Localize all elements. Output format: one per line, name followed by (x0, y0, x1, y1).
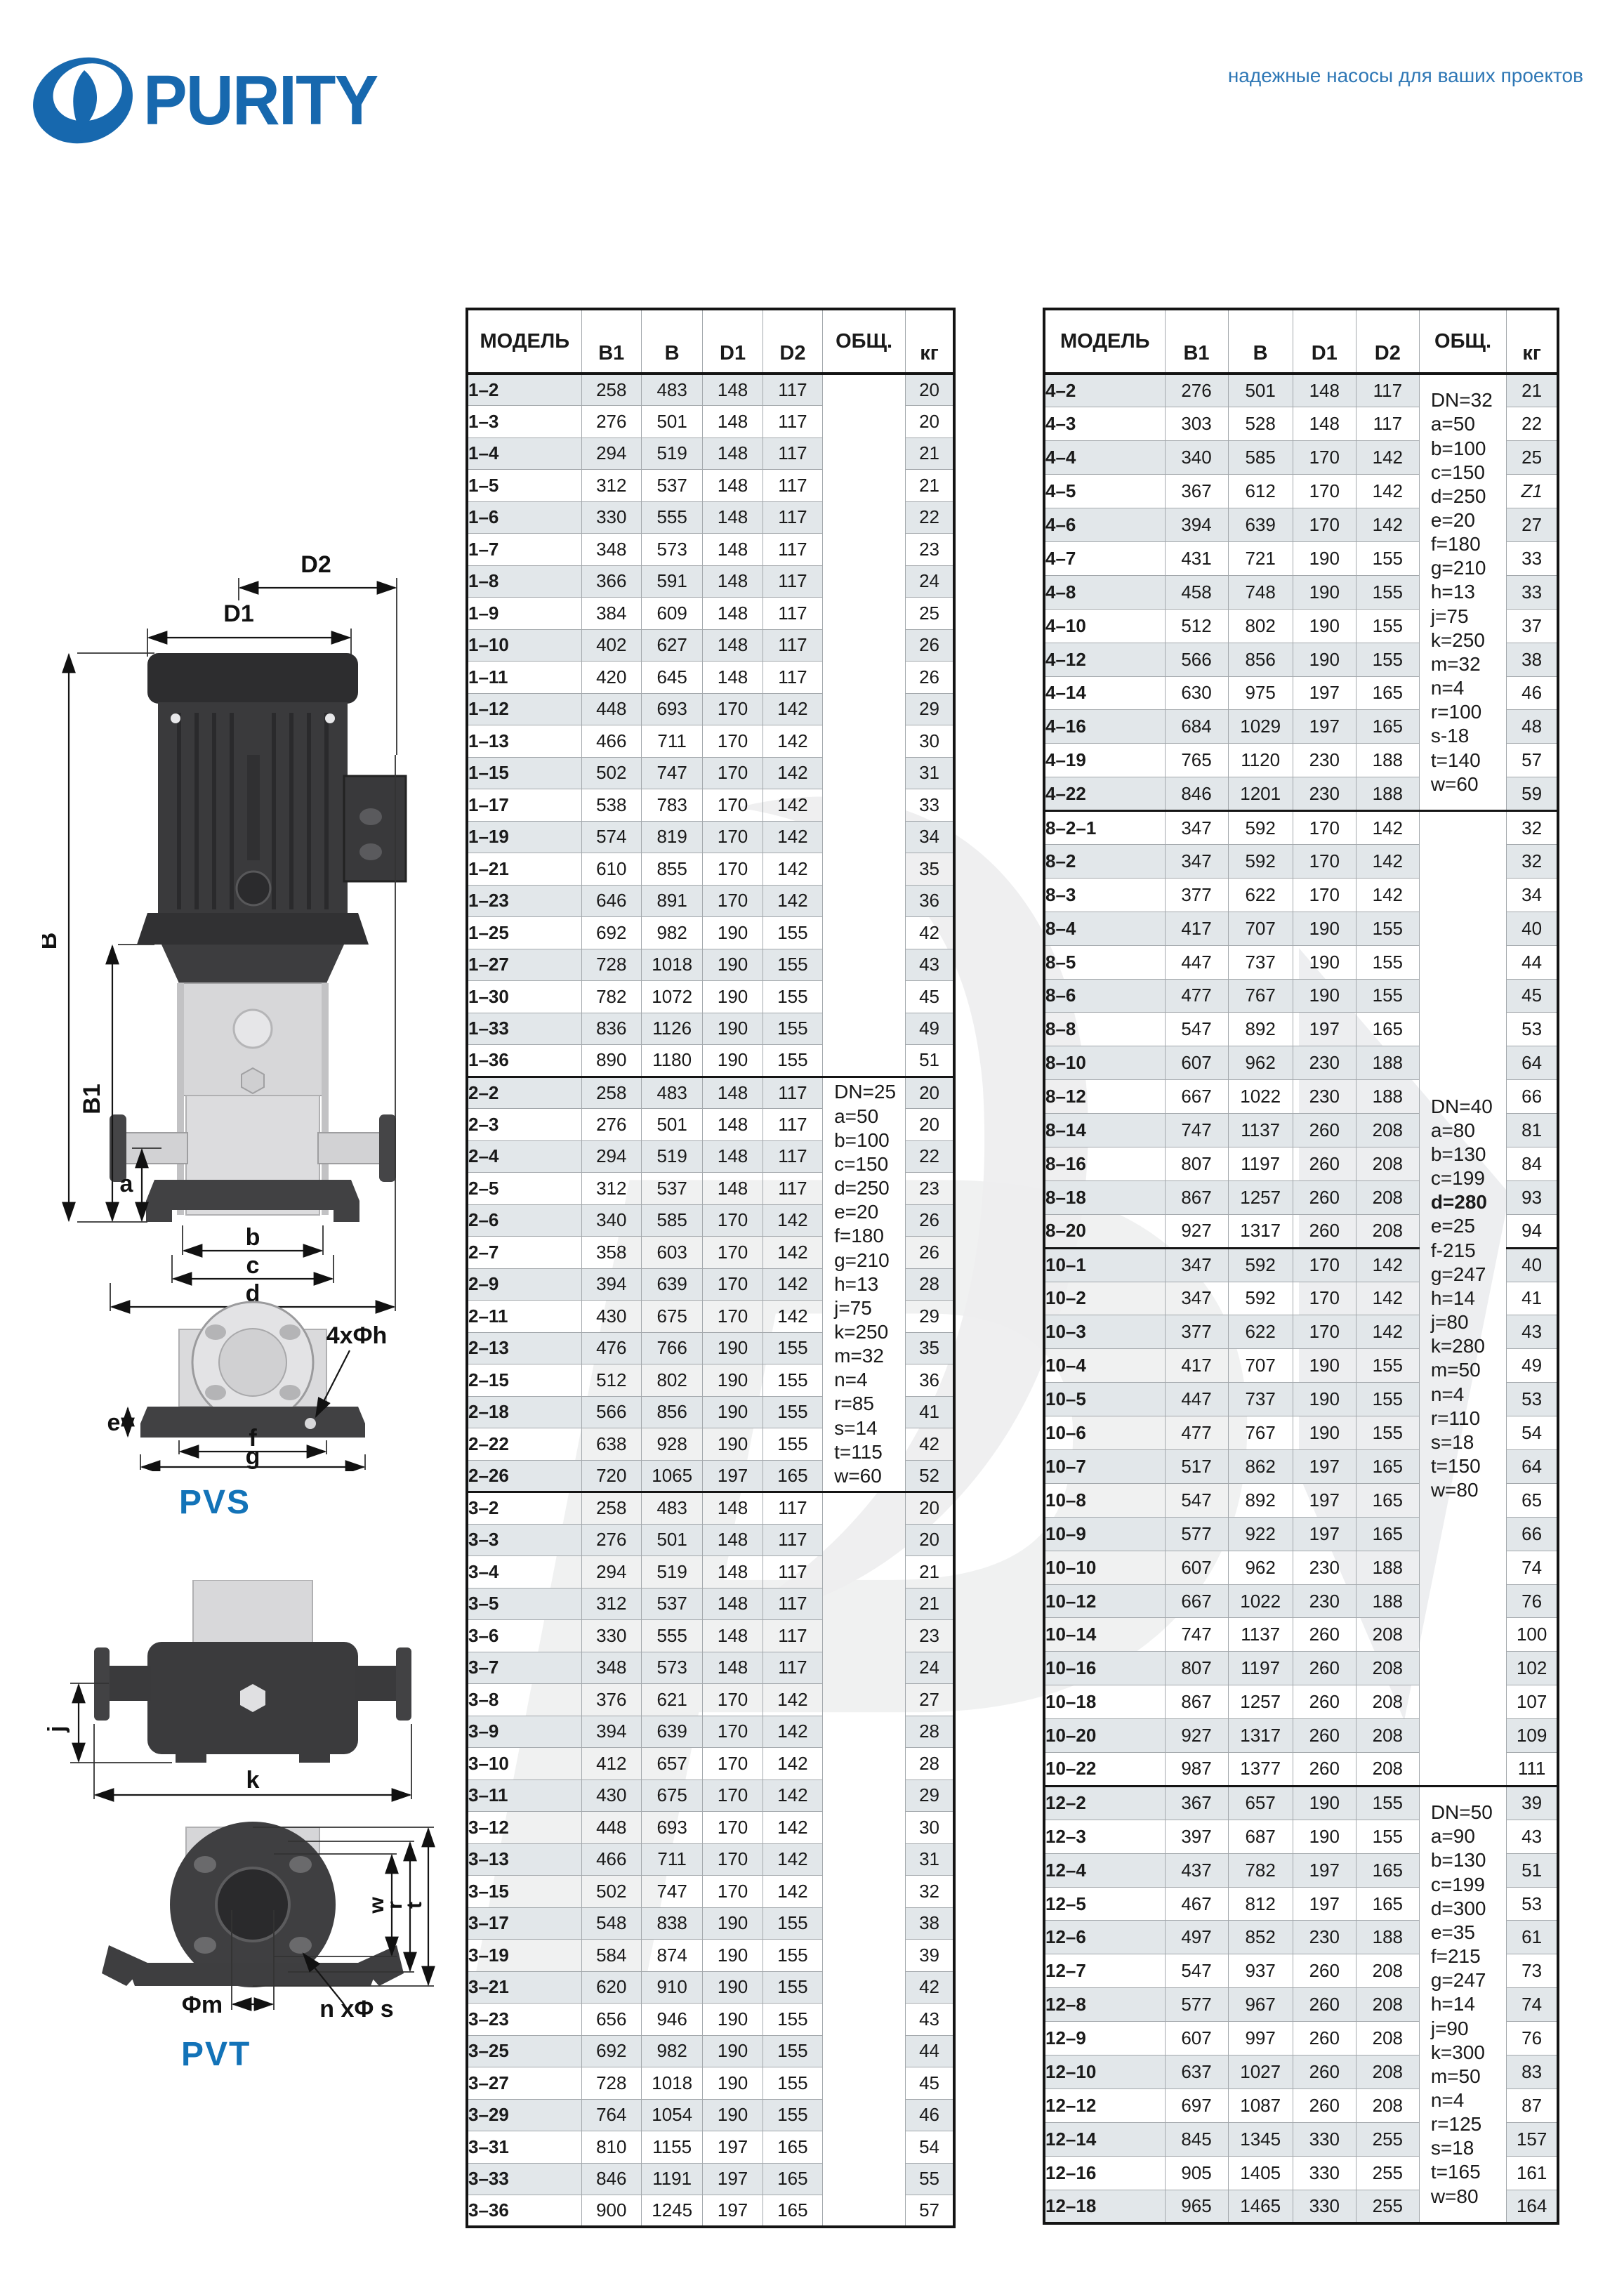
value-cell: 190 (703, 1940, 763, 1972)
value-cell: 142 (763, 725, 822, 758)
value-cell: 107 (1507, 1685, 1558, 1719)
value-cell: 638 (581, 1428, 641, 1461)
value-cell: 639 (1228, 508, 1293, 542)
model-cell: 10–20 (1044, 1719, 1165, 1753)
model-cell: 2–15 (467, 1364, 581, 1397)
value-cell: 155 (763, 1907, 822, 1940)
value-cell: 447 (1165, 1383, 1228, 1416)
value-cell: 142 (1356, 1248, 1419, 1282)
value-cell: 1087 (1228, 2088, 1293, 2122)
value-cell: 190 (1293, 609, 1356, 643)
value-cell: 57 (906, 2195, 954, 2228)
dim-label-a: a (120, 1171, 134, 1197)
value-cell: 30 (906, 725, 954, 758)
value-cell: 32 (906, 1876, 954, 1908)
value-cell: 802 (1228, 609, 1293, 643)
value-cell: 30 (906, 1812, 954, 1844)
model-cell: 1–3 (467, 406, 581, 438)
column-header-4: D2 (763, 309, 822, 374)
value-cell: 845 (1165, 2122, 1228, 2156)
value-cell: 44 (906, 2035, 954, 2067)
value-cell: 20 (906, 406, 954, 438)
model-cell: 2–3 (467, 1109, 581, 1141)
value-cell: 208 (1356, 1652, 1419, 1685)
value-cell: 117 (763, 501, 822, 534)
value-cell: 476 (581, 1332, 641, 1364)
value-cell: 155 (763, 1332, 822, 1364)
value-cell: 190 (1293, 1820, 1356, 1853)
value-cell: 402 (581, 629, 641, 662)
value-cell: 51 (1507, 1853, 1558, 1887)
value-cell: 170 (703, 693, 763, 725)
value-cell: 44 (1507, 945, 1558, 979)
value-cell: 190 (703, 2067, 763, 2100)
value-cell: 900 (581, 2195, 641, 2228)
model-cell: 1–2 (467, 374, 581, 406)
value-cell: 33 (1507, 575, 1558, 609)
dim-label-e: e (107, 1409, 121, 1436)
value-cell: 447 (1165, 945, 1228, 979)
value-cell: 501 (641, 1524, 702, 1556)
value-cell: 260 (1293, 1180, 1356, 1214)
value-cell: 117 (763, 565, 822, 598)
value-cell: 258 (581, 1492, 641, 1525)
value-cell: 87 (1507, 2088, 1558, 2122)
value-cell: 61 (1507, 1921, 1558, 1954)
value-cell: 548 (581, 1907, 641, 1940)
model-cell: 2–2 (467, 1077, 581, 1109)
value-cell: 260 (1293, 1652, 1356, 1685)
value-cell: 27 (906, 1684, 954, 1716)
value-cell: 394 (1165, 508, 1228, 542)
value-cell: 737 (1228, 945, 1293, 979)
value-cell: 21 (1507, 374, 1558, 407)
value-cell: 1345 (1228, 2122, 1293, 2156)
value-cell: 197 (1293, 1517, 1356, 1551)
value-cell: 170 (703, 821, 763, 853)
value-cell: 36 (906, 1364, 954, 1397)
value-cell: 707 (1228, 1349, 1293, 1383)
dim-label-j: j (44, 1725, 70, 1732)
value-cell: 190 (703, 2035, 763, 2067)
value-cell: 466 (581, 1843, 641, 1876)
model-cell: 12–3 (1044, 1820, 1165, 1853)
value-cell: 260 (1293, 1719, 1356, 1753)
value-cell: 142 (763, 885, 822, 917)
value-cell: 40 (1507, 912, 1558, 945)
value-cell: 376 (581, 1684, 641, 1716)
column-header-0: МОДЕЛЬ (467, 309, 581, 374)
value-cell: 555 (641, 1620, 702, 1652)
value-cell: 31 (906, 757, 954, 789)
common-dims-notes-cell: DN=25a=50b=100c=150d=250e=20f=180g=210h=… (823, 1077, 906, 1492)
value-cell: 165 (763, 2195, 822, 2228)
model-cell: 3–2 (467, 1492, 581, 1525)
table-row: 3–225848314811720 (467, 1492, 954, 1525)
value-cell: 276 (581, 1524, 641, 1556)
column-header-0: МОДЕЛЬ (1044, 309, 1165, 374)
value-cell: 692 (581, 917, 641, 949)
column-header-1: B1 (1165, 309, 1228, 374)
value-cell: 258 (581, 374, 641, 406)
value-cell: 348 (581, 1652, 641, 1684)
value-cell: 697 (1165, 2088, 1228, 2122)
value-cell: 928 (641, 1428, 702, 1461)
dim-label-b-height: B (42, 933, 62, 950)
value-cell: 155 (1356, 912, 1419, 945)
value-cell: 260 (1293, 2088, 1356, 2122)
value-cell: 519 (641, 1556, 702, 1588)
model-cell: 10–6 (1044, 1416, 1165, 1450)
value-cell: 1126 (641, 1013, 702, 1045)
value-cell: 34 (1507, 878, 1558, 912)
value-cell: 190 (703, 1364, 763, 1397)
model-cell: 12–9 (1044, 2022, 1165, 2055)
value-cell: 197 (1293, 676, 1356, 710)
value-cell: 155 (763, 2004, 822, 2036)
model-cell: 12–7 (1044, 1954, 1165, 1988)
value-cell: 208 (1356, 1753, 1419, 1787)
value-cell: 20 (906, 1077, 954, 1109)
value-cell: 190 (1293, 575, 1356, 609)
model-cell: 10–3 (1044, 1315, 1165, 1349)
value-cell: 148 (703, 1140, 763, 1173)
value-cell: 165 (1356, 1450, 1419, 1484)
value-cell: 170 (703, 1748, 763, 1780)
value-cell: 170 (703, 757, 763, 789)
value-cell: 66 (1507, 1517, 1558, 1551)
value-cell: 28 (906, 1748, 954, 1780)
value-cell: 170 (703, 1301, 763, 1333)
value-cell: 26 (906, 629, 954, 662)
value-cell: 188 (1356, 1921, 1419, 1954)
model-cell: 8–2 (1044, 844, 1165, 878)
value-cell: 20 (906, 1109, 954, 1141)
value-cell: 430 (581, 1780, 641, 1812)
value-cell: 693 (641, 693, 702, 725)
value-cell: 190 (703, 1396, 763, 1428)
value-cell: 1029 (1228, 710, 1293, 744)
value-cell: 294 (581, 1556, 641, 1588)
model-cell: 4–16 (1044, 710, 1165, 744)
model-cell: 10–8 (1044, 1483, 1165, 1517)
value-cell: 603 (641, 1237, 702, 1269)
value-cell: 165 (763, 2131, 822, 2164)
common-dims-notes-cell: DN=50a=90b=130c=199d=300e=35f=215g=247h=… (1419, 1786, 1506, 2223)
value-cell: 142 (1356, 1315, 1419, 1349)
value-cell: 483 (641, 1077, 702, 1109)
table-row: 2–2258483148117DN=25a=50b=100c=150d=250e… (467, 1077, 954, 1109)
model-cell: 2–7 (467, 1237, 581, 1269)
value-cell: 366 (581, 565, 641, 598)
model-cell: 8–5 (1044, 945, 1165, 979)
value-cell: 512 (1165, 609, 1228, 643)
model-cell: 12–8 (1044, 1988, 1165, 2022)
value-cell: 190 (703, 2004, 763, 2036)
value-cell: 260 (1293, 1988, 1356, 2022)
model-cell: 3–4 (467, 1556, 581, 1588)
table-row: 8–2–1347592170142DN=40a=80b=130c=199d=28… (1044, 811, 1558, 845)
value-cell: 170 (1293, 1282, 1356, 1315)
value-cell: 294 (581, 438, 641, 470)
value-cell: 592 (1228, 811, 1293, 845)
value-cell: 22 (906, 1140, 954, 1173)
value-cell: 190 (703, 949, 763, 981)
value-cell: 117 (763, 374, 822, 406)
common-dims-notes-cell: DN=32a=50b=100c=150d=250e=20f=180g=210h=… (1419, 374, 1506, 811)
value-cell: 609 (641, 598, 702, 630)
terminal-box (344, 776, 406, 881)
model-cell: 1–33 (467, 1013, 581, 1045)
value-cell: 230 (1293, 1046, 1356, 1080)
value-cell: 867 (1165, 1180, 1228, 1214)
value-cell: 142 (763, 1812, 822, 1844)
value-cell: 303 (1165, 407, 1228, 441)
value-cell: 417 (1165, 912, 1228, 945)
value-cell: 148 (703, 1524, 763, 1556)
value-cell: 197 (703, 2195, 763, 2228)
value-cell: 142 (763, 1876, 822, 1908)
value-cell: 165 (763, 2163, 822, 2195)
value-cell: 23 (906, 1173, 954, 1205)
value-cell: 260 (1293, 1618, 1356, 1652)
value-cell: 36 (906, 885, 954, 917)
value-cell: 1465 (1228, 2190, 1293, 2223)
value-cell: 208 (1356, 1988, 1419, 2022)
value-cell: 165 (1356, 1013, 1419, 1046)
model-cell: 12–4 (1044, 1853, 1165, 1887)
value-cell: 188 (1356, 1584, 1419, 1618)
value-cell: 76 (1507, 2022, 1558, 2055)
value-cell: 483 (641, 1492, 702, 1525)
value-cell: 170 (703, 1716, 763, 1748)
value-cell: 155 (1356, 1349, 1419, 1383)
value-cell: 836 (581, 1013, 641, 1045)
value-cell: 1377 (1228, 1753, 1293, 1787)
value-cell: 330 (581, 1620, 641, 1652)
model-cell: 1–25 (467, 917, 581, 949)
value-cell: 188 (1356, 777, 1419, 811)
value-cell: 1245 (641, 2195, 702, 2228)
model-cell: 3–33 (467, 2163, 581, 2195)
value-cell: 537 (641, 1588, 702, 1620)
dim-label-b1: B1 (79, 1084, 105, 1114)
value-cell: 38 (906, 1907, 954, 1940)
value-cell: 190 (703, 2099, 763, 2131)
model-cell: 4–2 (1044, 374, 1165, 407)
model-cell: 1–4 (467, 438, 581, 470)
model-cell: 10–4 (1044, 1349, 1165, 1383)
model-cell: 12–18 (1044, 2190, 1165, 2223)
value-cell: 155 (763, 1396, 822, 1428)
value-cell: 41 (1507, 1282, 1558, 1315)
value-cell: 657 (641, 1748, 702, 1780)
value-cell: 42 (906, 1971, 954, 2004)
column-header-5: ОБЩ. (1419, 309, 1506, 374)
value-cell: 910 (641, 1971, 702, 2004)
value-cell: 190 (1293, 1349, 1356, 1383)
common-dims-notes-cell (823, 1492, 906, 2228)
value-cell: 547 (1165, 1954, 1228, 1988)
value-cell: 566 (1165, 643, 1228, 676)
value-cell: 190 (703, 1428, 763, 1461)
value-cell: 230 (1293, 1551, 1356, 1584)
value-cell: 585 (1228, 441, 1293, 475)
value-cell: 170 (703, 1876, 763, 1908)
model-cell: 1–36 (467, 1045, 581, 1077)
model-cell: 4–7 (1044, 541, 1165, 575)
value-cell: Z1 (1507, 475, 1558, 508)
value-cell: 148 (703, 438, 763, 470)
value-cell: 258 (581, 1077, 641, 1109)
value-cell: 41 (906, 1396, 954, 1428)
model-cell: 1–23 (467, 885, 581, 917)
value-cell: 255 (1356, 2122, 1419, 2156)
value-cell: 148 (703, 1077, 763, 1109)
value-cell: 208 (1356, 1685, 1419, 1719)
value-cell: 190 (1293, 979, 1356, 1013)
value-cell: 39 (1507, 1786, 1558, 1820)
value-cell: 117 (763, 1077, 822, 1109)
value-cell: 197 (1293, 1853, 1356, 1887)
value-cell: 747 (1165, 1618, 1228, 1652)
value-cell: 24 (906, 565, 954, 598)
value-cell: 330 (1293, 2190, 1356, 2223)
value-cell: 1191 (641, 2163, 702, 2195)
value-cell: 667 (1165, 1080, 1228, 1114)
model-cell: 4–3 (1044, 407, 1165, 441)
value-cell: 117 (763, 1588, 822, 1620)
model-cell: 2–26 (467, 1460, 581, 1492)
value-cell: 26 (906, 1237, 954, 1269)
value-cell: 1137 (1228, 1618, 1293, 1652)
value-cell: 20 (906, 1492, 954, 1525)
value-cell: 330 (1293, 2156, 1356, 2190)
value-cell: 1137 (1228, 1114, 1293, 1147)
value-cell: 111 (1507, 1753, 1558, 1787)
value-cell: 45 (1507, 979, 1558, 1013)
value-cell: 412 (581, 1748, 641, 1780)
value-cell: 155 (763, 1971, 822, 2004)
value-cell: 155 (763, 2067, 822, 2100)
value-cell: 148 (1293, 374, 1356, 407)
value-cell: 170 (703, 1812, 763, 1844)
value-cell: 547 (1165, 1013, 1228, 1046)
value-cell: 397 (1165, 1820, 1228, 1853)
model-cell: 10–10 (1044, 1551, 1165, 1584)
value-cell: 230 (1293, 744, 1356, 777)
value-cell: 142 (763, 1237, 822, 1269)
dim-label-k: k (246, 1767, 260, 1794)
model-cell: 1–15 (467, 757, 581, 789)
value-cell: 1317 (1228, 1214, 1293, 1248)
value-cell: 142 (1356, 441, 1419, 475)
pvs-dimension-diagram: D2 D1 (42, 544, 435, 1471)
model-cell: 1–8 (467, 565, 581, 598)
model-cell: 8–14 (1044, 1114, 1165, 1147)
value-cell: 142 (763, 1748, 822, 1780)
model-cell: 1–12 (467, 693, 581, 725)
value-cell: 276 (1165, 374, 1228, 407)
value-cell: 852 (1228, 1921, 1293, 1954)
value-cell: 188 (1356, 744, 1419, 777)
value-cell: 621 (641, 1684, 702, 1716)
value-cell: 24 (906, 1652, 954, 1684)
value-cell: 197 (1293, 1887, 1356, 1921)
value-cell: 170 (703, 725, 763, 758)
value-cell: 170 (703, 1843, 763, 1876)
value-cell: 276 (581, 406, 641, 438)
value-cell: 32 (1507, 811, 1558, 845)
model-cell: 1–6 (467, 501, 581, 534)
value-cell: 21 (906, 1588, 954, 1620)
column-header-1: B1 (581, 309, 641, 374)
value-cell: 142 (1356, 844, 1419, 878)
model-cell: 2–4 (467, 1140, 581, 1173)
value-cell: 892 (1228, 1483, 1293, 1517)
value-cell: 230 (1293, 1584, 1356, 1618)
value-cell: 148 (703, 1173, 763, 1205)
value-cell: 922 (1228, 1517, 1293, 1551)
model-cell: 2–5 (467, 1173, 581, 1205)
value-cell: 783 (641, 789, 702, 822)
value-cell: 646 (581, 885, 641, 917)
value-cell: 519 (641, 438, 702, 470)
value-cell: 692 (581, 2035, 641, 2067)
value-cell: 117 (763, 662, 822, 694)
value-cell: 197 (1293, 1013, 1356, 1046)
value-cell: 170 (703, 1780, 763, 1812)
model-cell: 4–22 (1044, 777, 1165, 811)
datasheet-page: P PURITY надежные насосы для ваших проек… (0, 0, 1624, 2276)
value-cell: 838 (641, 1907, 702, 1940)
value-cell: 54 (906, 2131, 954, 2164)
value-cell: 577 (1165, 1988, 1228, 2022)
value-cell: 117 (763, 1492, 822, 1525)
value-cell: 190 (1293, 541, 1356, 575)
value-cell: 54 (1507, 1416, 1558, 1450)
value-cell: 26 (906, 662, 954, 694)
value-cell: 142 (763, 1268, 822, 1301)
value-cell: 52 (906, 1460, 954, 1492)
value-cell: 117 (763, 534, 822, 566)
value-cell: 148 (703, 1652, 763, 1684)
value-cell: 711 (641, 1843, 702, 1876)
value-cell: 255 (1356, 2156, 1419, 2190)
value-cell: 347 (1165, 1248, 1228, 1282)
model-cell: 4–10 (1044, 609, 1165, 643)
value-cell: 538 (581, 789, 641, 822)
value-cell: 190 (1293, 1383, 1356, 1416)
value-cell: 347 (1165, 844, 1228, 878)
value-cell: 21 (906, 1556, 954, 1588)
value-cell: 142 (763, 821, 822, 853)
dim-label-d1: D1 (223, 600, 253, 627)
model-cell: 3–36 (467, 2195, 581, 2228)
value-cell: 33 (906, 789, 954, 822)
value-cell: 208 (1356, 2055, 1419, 2089)
value-cell: 25 (906, 598, 954, 630)
dimensions-table-left: МОДЕЛЬB1BD1D2ОБЩ.кг1–2258483148117201–32… (466, 308, 956, 2228)
value-cell: 987 (1165, 1753, 1228, 1787)
value-cell: 707 (1228, 912, 1293, 945)
model-cell: 1–11 (467, 662, 581, 694)
value-cell: 519 (641, 1140, 702, 1173)
value-cell: 155 (1356, 945, 1419, 979)
value-cell: 1054 (641, 2099, 702, 2131)
value-cell: 997 (1228, 2022, 1293, 2055)
value-cell: 1065 (641, 1460, 702, 1492)
